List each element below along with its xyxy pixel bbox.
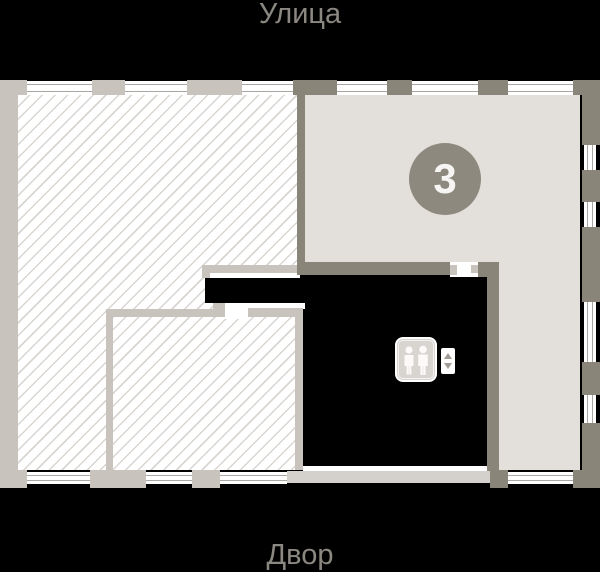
- wall-core-right: [487, 275, 499, 471]
- window: [125, 81, 187, 95]
- core-area: [303, 303, 487, 466]
- elevator-people-icon: [398, 340, 434, 379]
- wall-room-right: [295, 308, 303, 470]
- wall-pier: [582, 80, 600, 145]
- window: [508, 81, 573, 95]
- door-jamb: [450, 265, 457, 275]
- door-jamb: [213, 303, 225, 317]
- door-opening: [225, 303, 248, 319]
- arrow-up-icon: [444, 353, 452, 359]
- apartment-number-badge[interactable]: 3: [409, 143, 481, 215]
- wall-common-left: [297, 82, 305, 265]
- window: [584, 202, 596, 227]
- wall-gap: [210, 273, 300, 278]
- window: [242, 81, 293, 95]
- wall-pier: [387, 80, 412, 95]
- window: [584, 395, 596, 423]
- street-label: Улица: [0, 0, 600, 29]
- window: [220, 472, 287, 484]
- wall-pier: [478, 80, 508, 95]
- wall-common-bottom: [297, 262, 450, 275]
- window: [337, 81, 387, 95]
- floor-plan: Улица: [0, 0, 600, 572]
- window: [412, 81, 478, 95]
- wall-room-top: [106, 309, 225, 317]
- arrow-down-icon: [444, 363, 452, 369]
- wall-core-bottom: [287, 471, 490, 483]
- wall-corridor: [202, 265, 300, 273]
- wall-pier: [582, 362, 600, 395]
- window: [584, 145, 596, 170]
- window: [584, 302, 596, 362]
- window: [508, 472, 573, 484]
- wall-pier: [0, 470, 27, 488]
- wall-pier: [293, 80, 337, 95]
- wall-pier: [92, 80, 125, 95]
- wall-pier: [582, 227, 600, 302]
- elevator-icon: [395, 337, 437, 382]
- wall-pier: [0, 80, 27, 95]
- wall-stub: [202, 265, 210, 278]
- window: [27, 81, 92, 95]
- wall-pier: [573, 470, 600, 488]
- wall-room-left: [106, 309, 113, 470]
- wall-pier: [490, 470, 508, 488]
- common-area-leg[interactable]: [499, 262, 580, 470]
- window: [146, 472, 192, 484]
- wall-pier: [192, 470, 220, 488]
- wall-left: [0, 93, 18, 470]
- window: [27, 472, 90, 484]
- wall-pier: [187, 80, 242, 95]
- core-corridor-area: [205, 277, 499, 303]
- door-jamb: [471, 265, 478, 273]
- elevator-call-panel: [441, 348, 455, 374]
- courtyard-label: Двор: [0, 540, 600, 570]
- wall-pier: [90, 470, 146, 488]
- wall-pier: [582, 170, 600, 202]
